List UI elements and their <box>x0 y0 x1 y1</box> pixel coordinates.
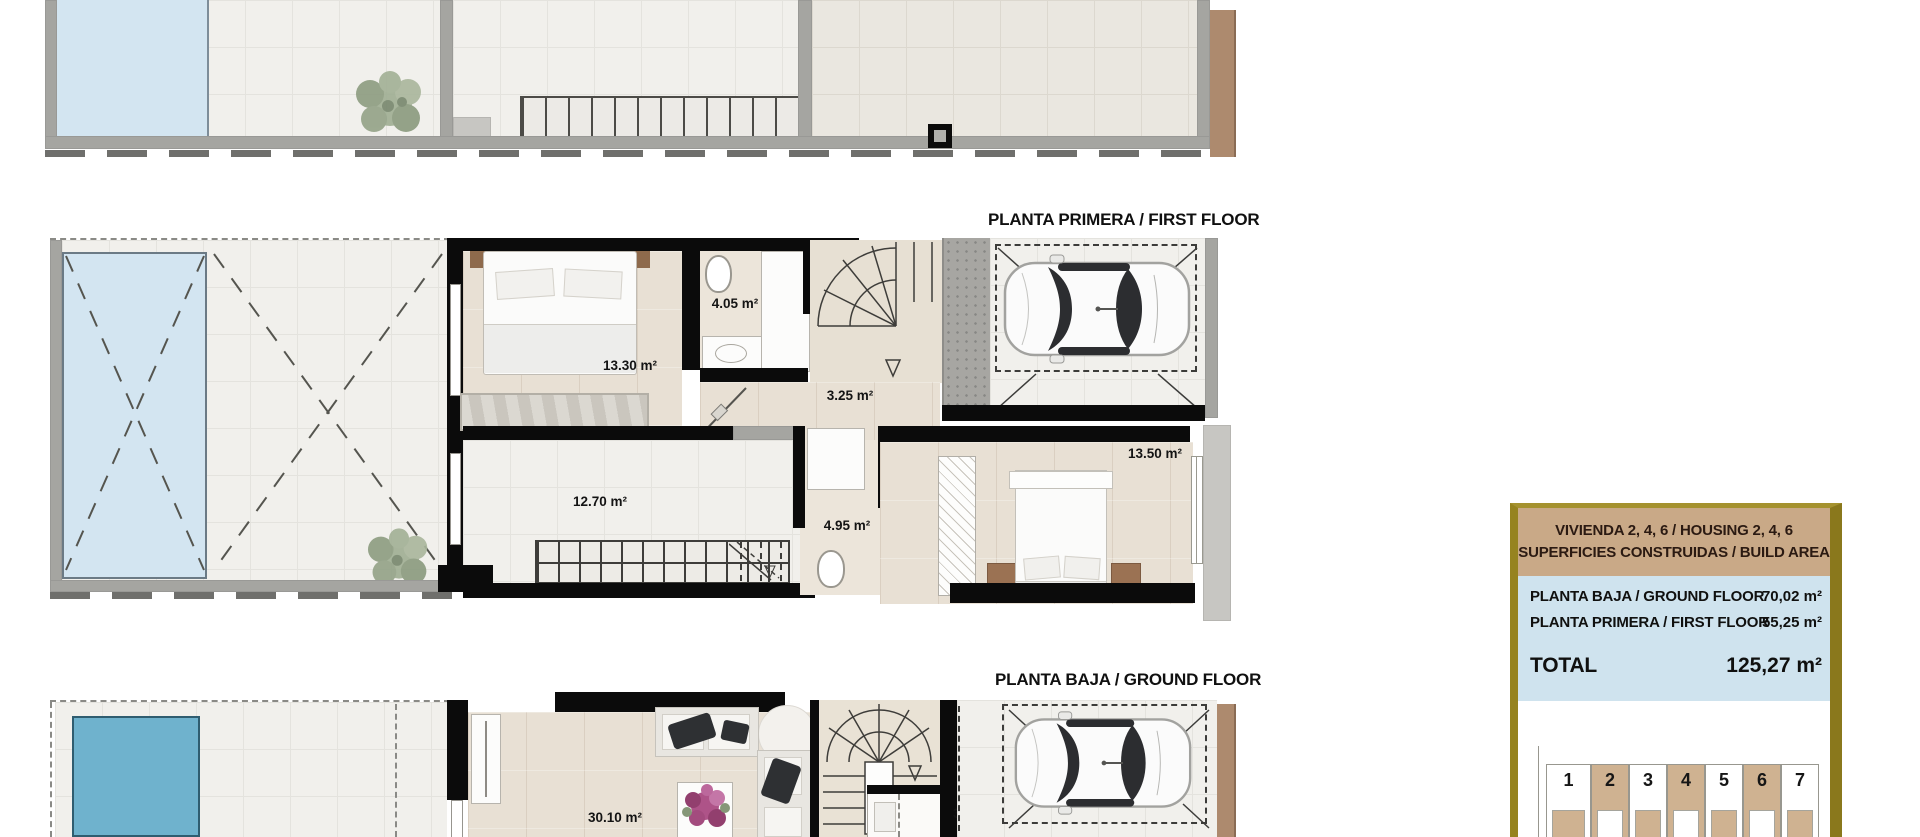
sink-counter <box>702 336 762 370</box>
stair-curved <box>810 240 950 383</box>
wall-segment <box>463 583 815 598</box>
area-label-bathroom1: 4.05 m² <box>690 296 780 311</box>
wall-segment <box>867 785 940 794</box>
wall-segment <box>447 700 468 800</box>
first-floor-row-label: PLANTA PRIMERA / FIRST FLOOR <box>1530 614 1769 631</box>
plot-dashed-divider <box>395 704 397 837</box>
wall-segment <box>438 565 493 592</box>
wall-segment <box>950 583 1195 603</box>
site-unit-7: 7 <box>1781 764 1819 837</box>
wall-segment <box>50 580 450 592</box>
first-floor-plan: 13.30 m² 4.05 m² <box>45 238 1234 618</box>
sofa <box>757 750 811 837</box>
total-value: 125,27 m² <box>1726 654 1822 678</box>
facade-dashes <box>45 150 1205 157</box>
wardrobe <box>938 456 976 596</box>
site-unit-1: 1 <box>1546 764 1591 837</box>
first-floor-title: PLANTA PRIMERA / FIRST FLOOR <box>988 210 1259 230</box>
site-plan-units: 1 2 3 4 5 6 7 <box>1546 764 1819 837</box>
area-label-bedroom1: 13.30 m² <box>565 358 695 373</box>
window <box>450 453 461 545</box>
toilet <box>817 550 845 588</box>
total-label: TOTAL <box>1530 654 1597 678</box>
wall-segment <box>700 368 808 382</box>
facade-dashes <box>50 592 452 599</box>
party-wall <box>1210 10 1236 157</box>
info-panel-header: VIVIENDA 2, 4, 6 / HOUSING 2, 4, 6 SUPER… <box>1518 508 1830 576</box>
stair-straight <box>535 540 790 584</box>
ground-floor-row-value: 70,02 m² <box>1762 588 1822 605</box>
ground-floor-plan: 30.10 m² <box>45 692 1234 837</box>
site-unit-6: 6 <box>1743 764 1781 837</box>
plant-icon <box>675 778 737 837</box>
site-boundary-line <box>1538 746 1539 837</box>
site-unit-3: 3 <box>1629 764 1667 837</box>
pool <box>57 0 209 138</box>
window <box>450 284 461 396</box>
housing-title: VIVIENDA 2, 4, 6 / HOUSING 2, 4, 6 <box>1518 520 1830 542</box>
window-lintel <box>733 426 800 440</box>
wall-segment <box>793 426 805 528</box>
build-area-title: SUPERFICIES CONSTRUIDAS / BUILD AREA <box>1518 542 1830 564</box>
solarium <box>812 0 1197 138</box>
plant-icon <box>340 62 440 146</box>
ground-floor-row-label: PLANTA BAJA / GROUND FLOOR <box>1530 588 1764 605</box>
wall-segment <box>942 405 1205 421</box>
area-label-bedroom3: 12.70 m² <box>535 494 665 509</box>
pool <box>72 716 200 837</box>
storage-room <box>867 794 941 837</box>
roof-plan <box>45 0 1234 158</box>
sofa <box>655 707 759 757</box>
info-panel: VIVIENDA 2, 4, 6 / HOUSING 2, 4, 6 SUPER… <box>1510 503 1842 837</box>
wall-segment <box>1197 0 1210 149</box>
wall-segment <box>892 426 1190 442</box>
toilet <box>705 255 732 293</box>
area-label-hallway: 3.25 m² <box>800 388 900 403</box>
site-unit-4: 4 <box>1667 764 1705 837</box>
window <box>1191 456 1203 564</box>
wall-segment <box>798 0 812 138</box>
wall-segment <box>440 0 453 138</box>
wall-segment <box>45 0 57 149</box>
site-unit-2: 2 <box>1591 764 1629 837</box>
site-plan: 1 2 3 4 5 6 7 <box>1518 706 1830 837</box>
wall-segment <box>1203 425 1231 621</box>
area-label-living: 30.10 m² <box>550 810 680 825</box>
party-wall <box>1217 704 1236 837</box>
shower <box>807 428 865 490</box>
chimney <box>928 124 952 148</box>
wall-segment <box>447 238 859 251</box>
wall-segment <box>45 136 1210 149</box>
ground-floor-title: PLANTA BAJA / GROUND FLOOR <box>995 670 1261 690</box>
floor-plan-sheet: PLANTA PRIMERA / FIRST FLOOR <box>0 0 1920 837</box>
window <box>451 800 463 837</box>
site-unit-5: 5 <box>1705 764 1743 837</box>
info-panel-areas: PLANTA BAJA / GROUND FLOOR 70,02 m² PLAN… <box>1518 576 1830 701</box>
plot-dashed-edge <box>50 702 52 837</box>
sideboard <box>471 714 501 804</box>
wall-segment <box>1205 238 1218 418</box>
bed <box>483 251 637 375</box>
roof-stairs <box>520 96 802 138</box>
wall-segment <box>50 240 62 592</box>
concrete-wall <box>942 238 992 416</box>
car <box>1002 250 1192 368</box>
first-floor-row-value: 55,25 m² <box>1762 614 1822 631</box>
car <box>1013 708 1193 818</box>
wall-segment <box>810 700 819 837</box>
planter-box <box>453 117 491 138</box>
